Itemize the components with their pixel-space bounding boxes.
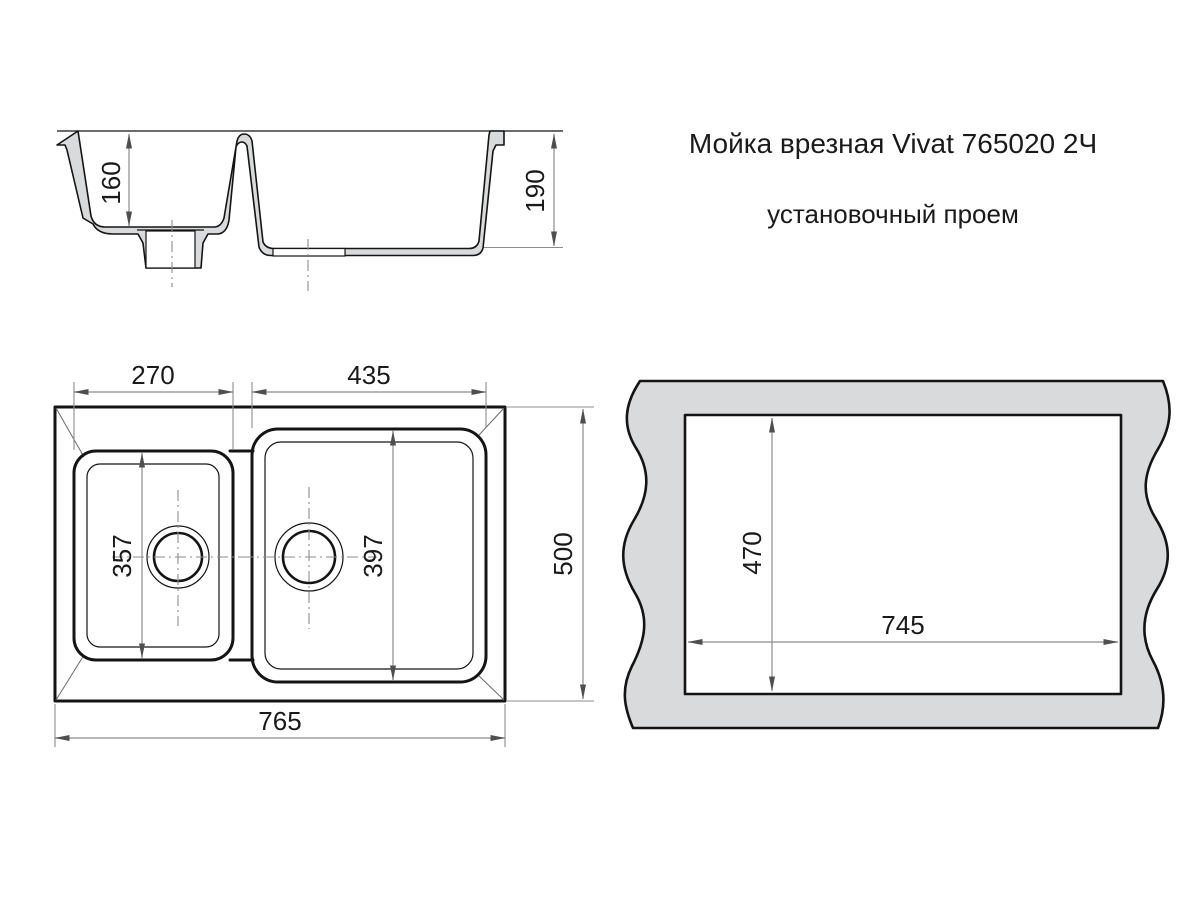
- cutout-view: 470 745: [623, 381, 1169, 728]
- dim-label-270: 270: [131, 360, 174, 390]
- dim-small-bowl-length: 357: [107, 453, 142, 658]
- drawing-title: Мойка врезная Vivat 765020 2Ч: [689, 128, 1097, 159]
- dim-right-bowl-depth: 190: [520, 134, 554, 246]
- drawing-subtitle: установочный проем: [767, 199, 1019, 229]
- top-view: 270 435 357 397 765: [55, 360, 594, 747]
- dim-overall-width: 500: [507, 407, 594, 701]
- dim-left-bowl-depth: 160: [96, 134, 129, 226]
- dim-label-435: 435: [347, 360, 390, 390]
- right-drain-flange: [273, 249, 345, 257]
- corner-diagonal-bl: [56, 655, 84, 700]
- dim-label-500: 500: [548, 532, 578, 575]
- left-drain-body: [146, 231, 195, 268]
- dim-label-397: 397: [358, 534, 388, 577]
- dim-label-190: 190: [520, 169, 550, 212]
- dim-label-357: 357: [107, 534, 137, 577]
- dim-large-bowl-width: 435: [252, 360, 486, 428]
- title-block: Мойка врезная Vivat 765020 2Ч установочн…: [689, 128, 1097, 229]
- dim-overall-length: 765: [55, 704, 505, 747]
- dim-large-bowl-length: 397: [358, 431, 393, 680]
- dim-label-470: 470: [737, 531, 767, 574]
- dim-label-765: 765: [258, 706, 301, 736]
- corner-diagonal-br: [479, 676, 504, 700]
- technical-drawing: 160 190 Мойка врезная Vivat 765020 2Ч ус…: [0, 0, 1200, 900]
- dim-label-745: 745: [881, 610, 924, 640]
- corner-diagonal-tr: [479, 408, 504, 435]
- section-view: 160 190: [57, 131, 563, 291]
- dim-small-bowl-width: 270: [74, 360, 233, 450]
- corner-diagonal-tl: [56, 408, 84, 457]
- dim-label-160: 160: [96, 161, 126, 204]
- drawing-page: 160 190 Мойка врезная Vivat 765020 2Ч ус…: [0, 0, 1200, 900]
